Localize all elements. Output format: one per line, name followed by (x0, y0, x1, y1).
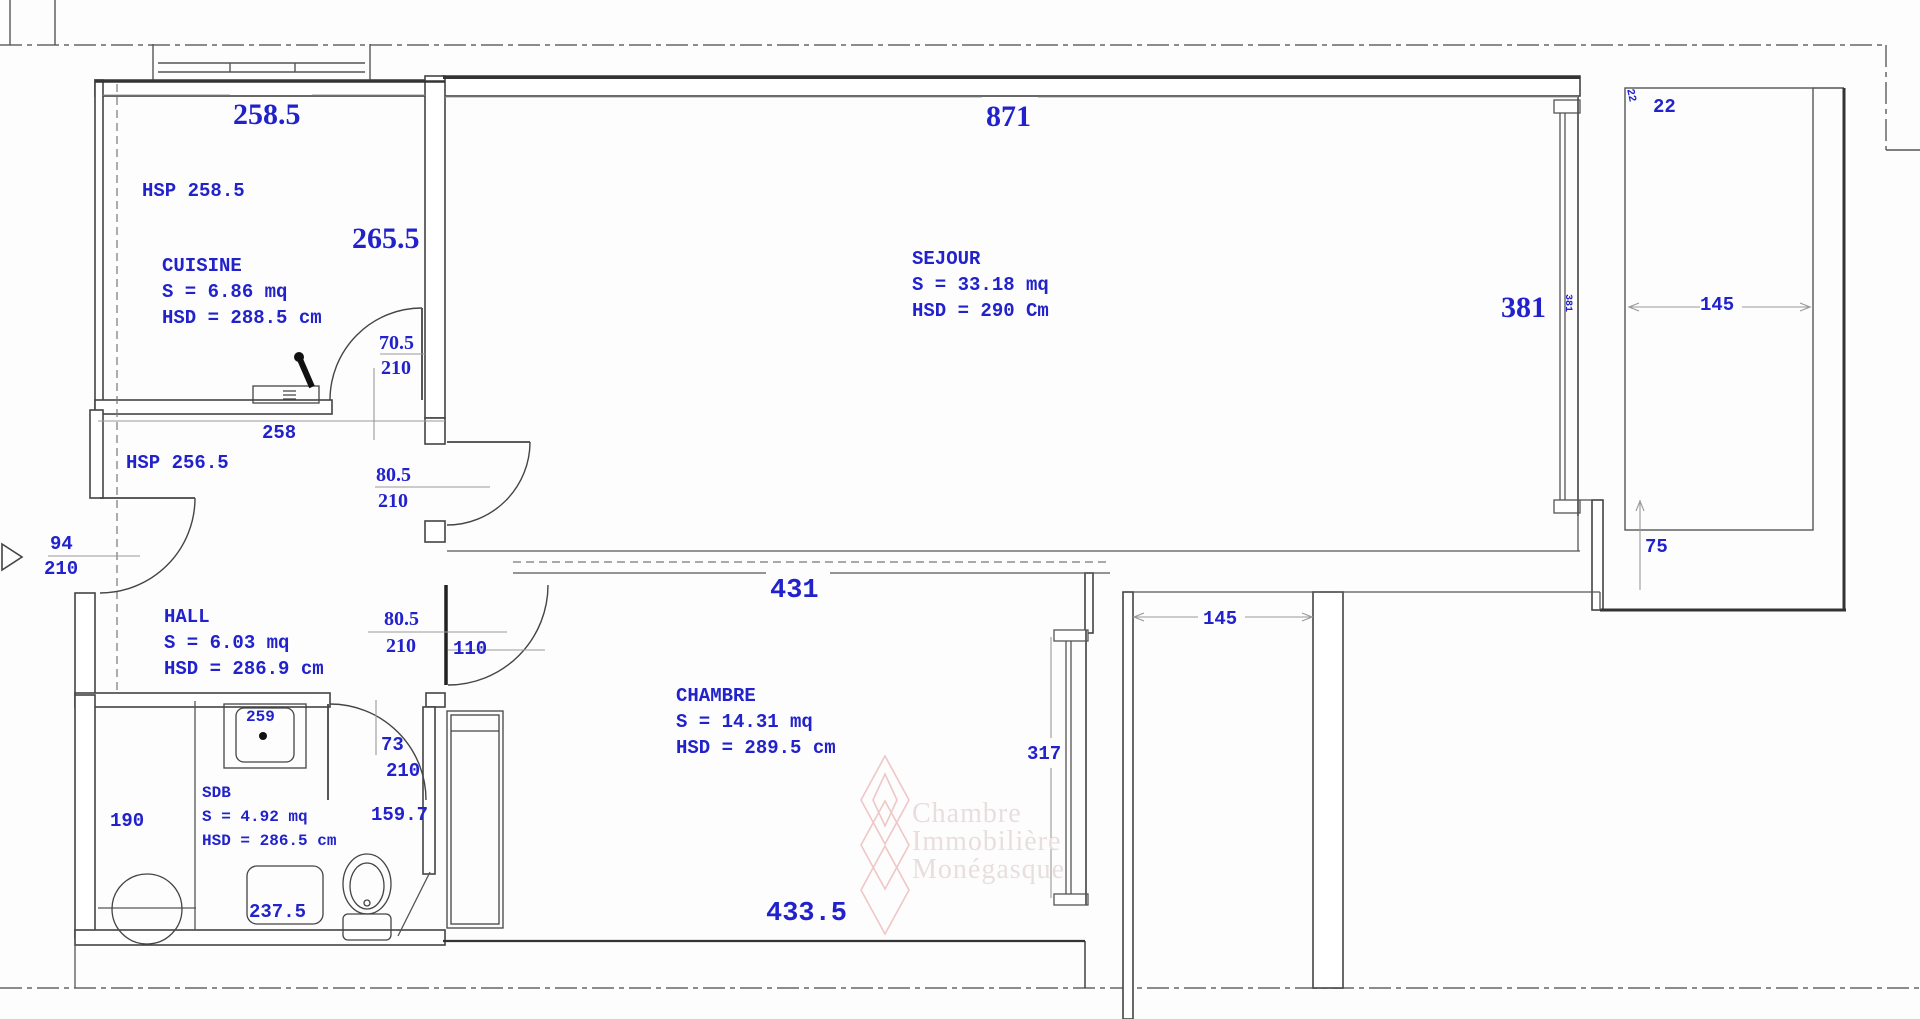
dim-sejour-door-width: 80.5 (376, 464, 411, 487)
kitchen-burner-icon (283, 391, 296, 399)
dim-chambre-door-height: 210 (386, 635, 416, 658)
label-sejour-name: SEJOUR (912, 248, 980, 270)
floorplan: 258.5 265.5 871 381 381 258 431 433.5 31… (0, 0, 1920, 1019)
label-cuisine-hsp: HSP 258.5 (142, 180, 245, 202)
wc-flush (364, 900, 370, 906)
kitchen-faucet-arm (299, 357, 312, 387)
label-hall-name: HALL (164, 606, 210, 628)
watermark-line3: Monégasque (912, 854, 1065, 886)
dim-entry-door-width: 94 (50, 533, 73, 555)
dim-kitchen-right: 265.5 (352, 222, 420, 256)
sdb-door-arc (330, 704, 426, 800)
dim-balcony-width: 145 (1700, 294, 1734, 316)
label-sdb-height: HSD = 286.5 cm (202, 832, 336, 850)
chambre-closet (447, 711, 503, 928)
dim-balcony-step: 75 (1645, 536, 1668, 558)
dim-sdb-right: 159.7 (371, 804, 428, 826)
dim-kitchen-door-width: 70.5 (379, 332, 414, 355)
dim-kitchen-top: 258.5 (233, 98, 301, 132)
dim-sejour-right-small: 381 (1562, 294, 1572, 312)
walls (75, 76, 1603, 1019)
dim-corridor-width: 145 (1203, 608, 1237, 630)
label-sdb-name: SDB (202, 784, 231, 802)
label-chambre-area: S = 14.31 mq (676, 711, 813, 733)
dim-sejour-door-height: 210 (378, 490, 408, 513)
sejour-door-arc (447, 442, 530, 525)
label-hall-area: S = 6.03 mq (164, 632, 289, 654)
dim-sdb-door-width: 73 (381, 734, 404, 756)
dim-entry-door-height: 210 (44, 558, 78, 580)
dim-chambre-door-width: 80.5 (384, 608, 419, 631)
label-sejour-height: HSD = 290 Cm (912, 300, 1049, 322)
dim-chambre-bottom: 433.5 (766, 899, 847, 929)
dim-sdb-left: 190 (110, 810, 144, 832)
door-swings (100, 308, 548, 800)
dim-sdb-basin: 259 (246, 708, 275, 726)
entry-door-arc (100, 498, 195, 593)
dim-balcony-notch: 22 (1653, 96, 1676, 118)
label-chambre-height: HSD = 289.5 cm (676, 737, 836, 759)
dim-sdb-bottom: 237.5 (249, 901, 306, 923)
dim-sdb-door-height: 210 (386, 760, 420, 782)
label-cuisine-area: S = 6.86 mq (162, 281, 287, 303)
dim-sejour-right: 381 (1501, 291, 1546, 325)
label-sdb-area: S = 4.92 mq (202, 808, 308, 826)
dashed-lines (117, 84, 1110, 693)
label-sejour-area: S = 33.18 mq (912, 274, 1049, 296)
dim-kitchen-door-height: 210 (381, 357, 411, 380)
label-hall-height: HSD = 286.9 cm (164, 658, 324, 680)
label-hall-hsp: HSP 256.5 (126, 452, 229, 474)
dim-chambre-door-clear: 110 (453, 638, 487, 660)
dimension-lines (48, 95, 1811, 898)
label-cuisine-height: HSD = 288.5 cm (162, 307, 322, 329)
dim-chambre-top: 431 (770, 576, 819, 606)
dim-hall-top: 258 (262, 422, 296, 444)
entrance-arrow-icon (2, 544, 22, 570)
label-chambre-name: CHAMBRE (676, 685, 756, 707)
label-cuisine-name: CUISINE (162, 255, 242, 277)
wc-bowl-inner (350, 863, 384, 909)
dim-chambre-right: 317 (1027, 743, 1061, 765)
dim-balcony-notch-small: 22 (1623, 88, 1637, 103)
watermark-logo-icon (861, 756, 909, 934)
chambre-door-arc (448, 585, 548, 685)
dim-sejour-top: 871 (986, 100, 1031, 134)
chambre-closet-inner (451, 715, 499, 924)
sdb-basin-drain (259, 732, 267, 740)
